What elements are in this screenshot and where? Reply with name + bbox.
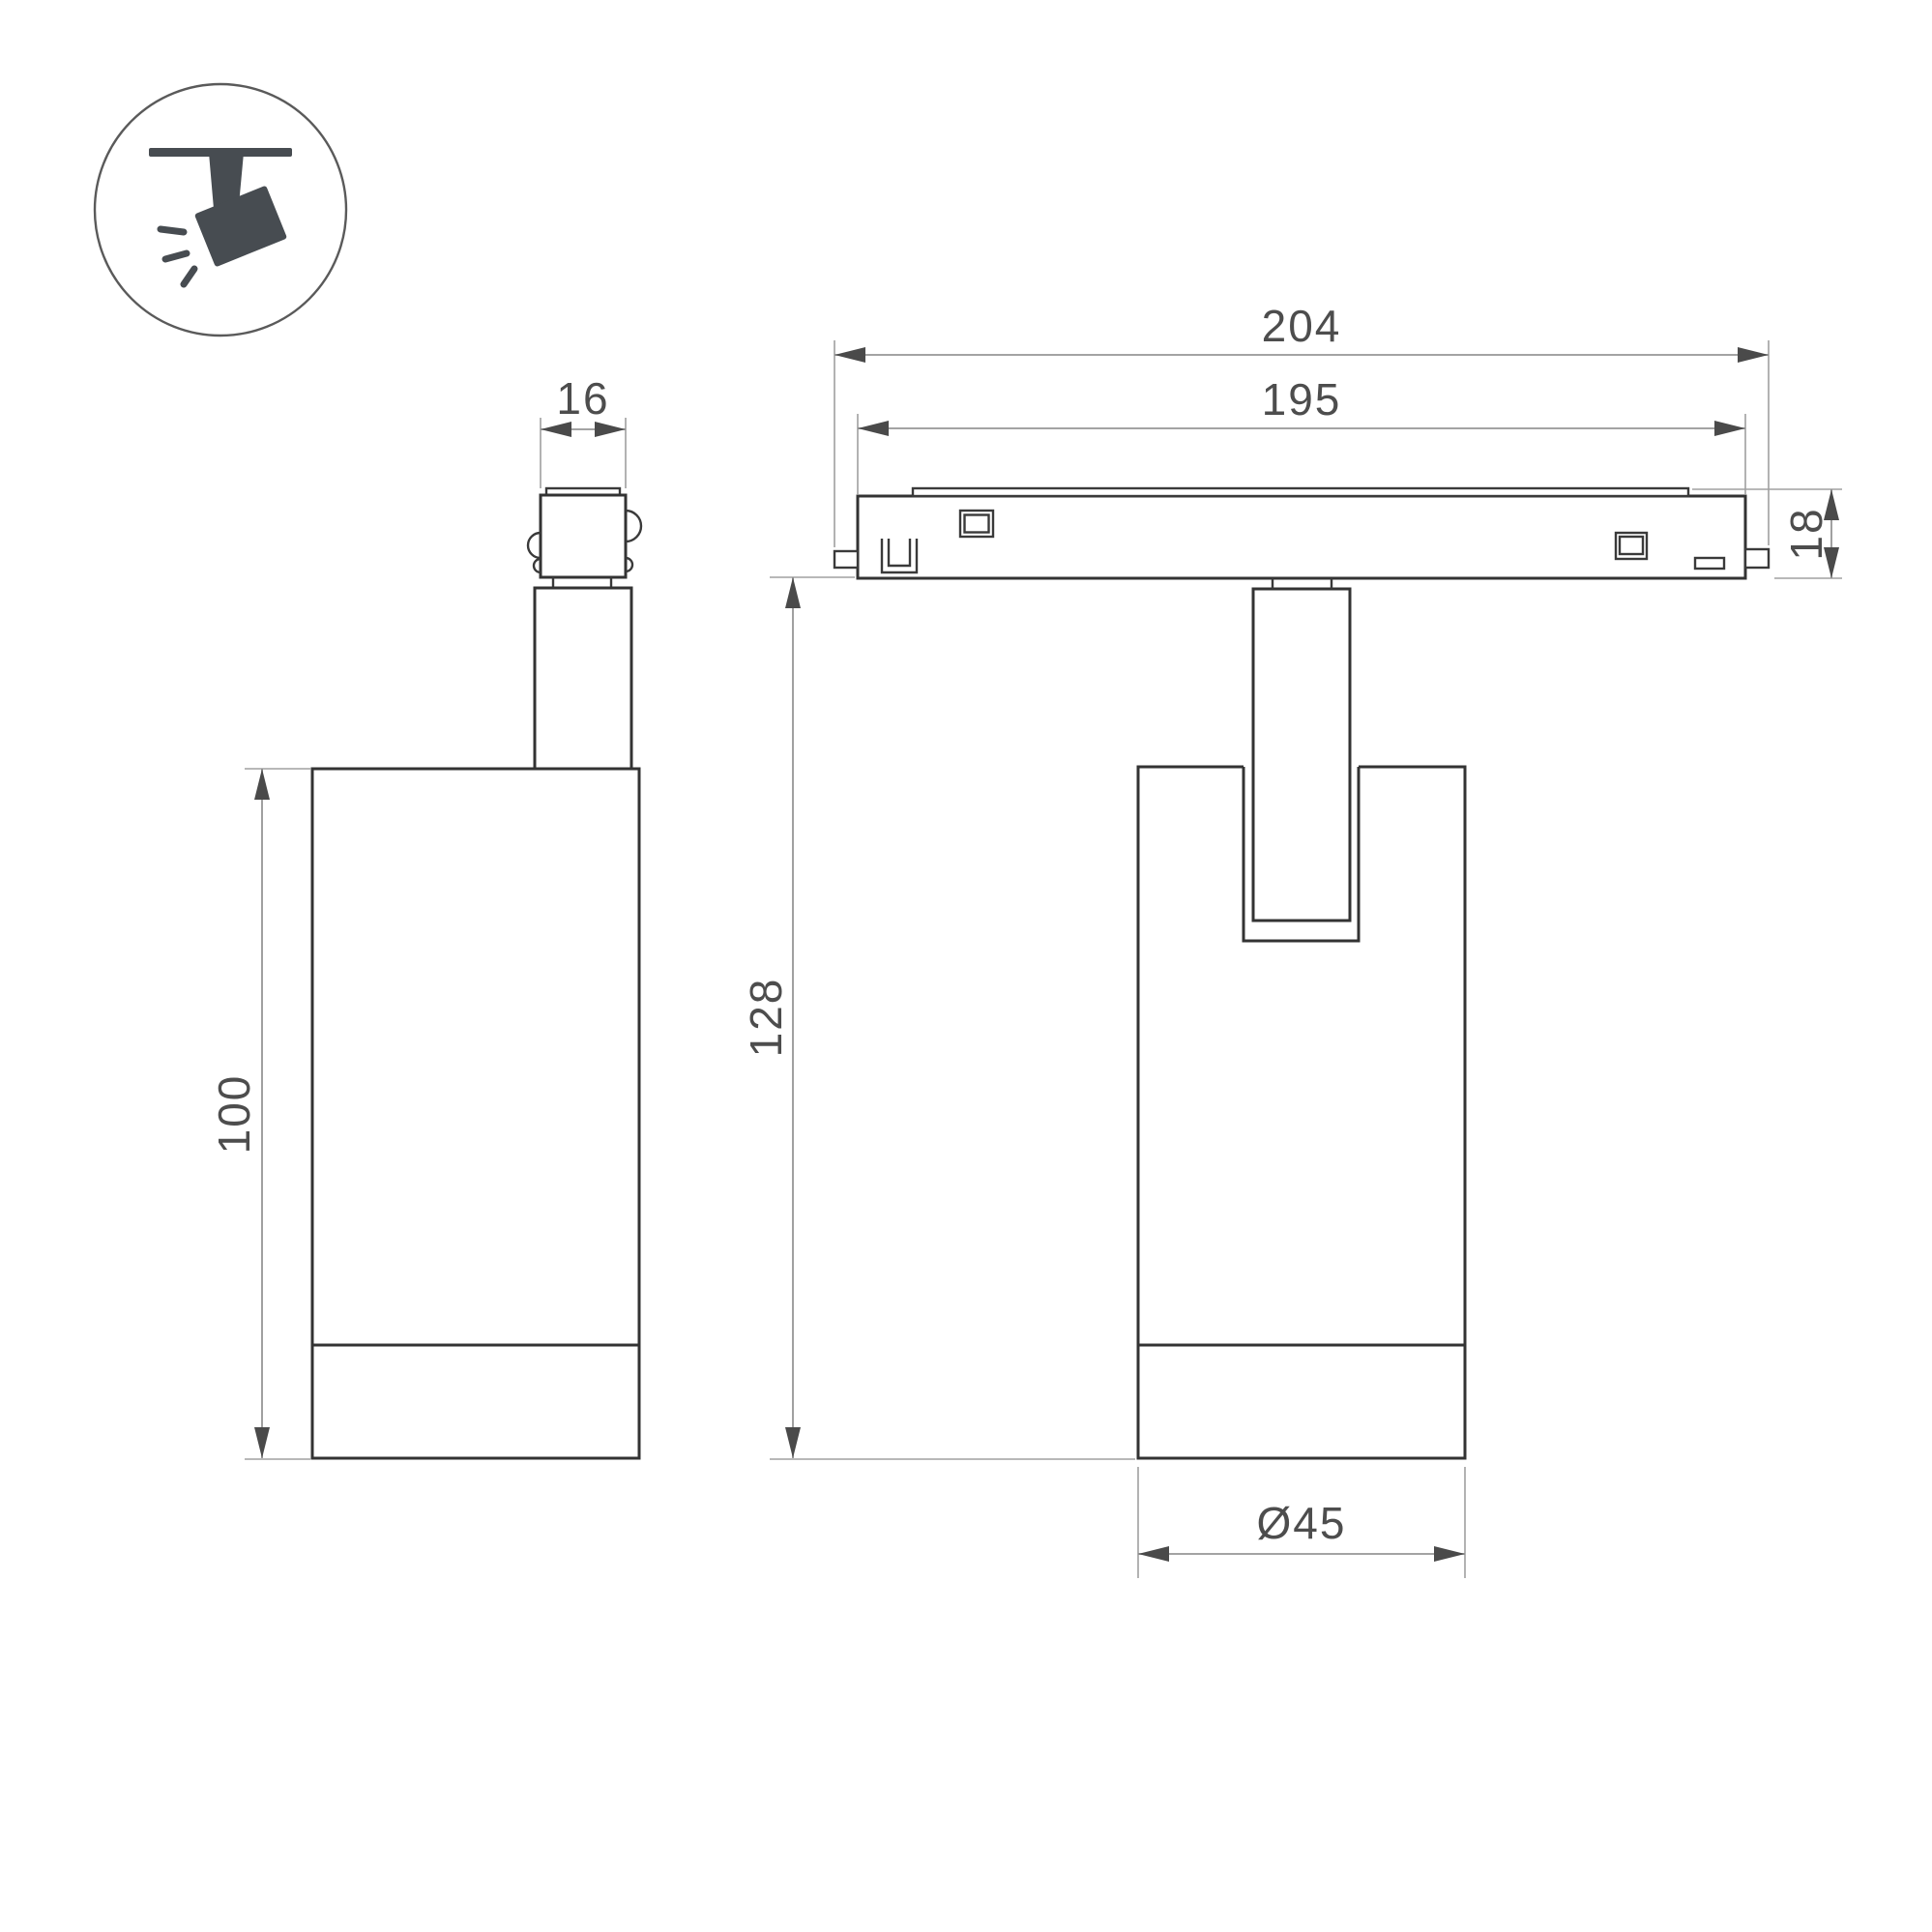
dim-adapter-width: 16 <box>541 373 626 488</box>
track-top-plate <box>913 488 1688 496</box>
dim-body-diameter-label: Ø45 <box>1257 1498 1347 1548</box>
adapter-neck <box>1273 578 1332 589</box>
stem <box>1253 589 1350 921</box>
dim-track-height-label: 18 <box>1781 507 1831 560</box>
track-end-tab <box>1745 549 1769 568</box>
side-view <box>312 488 641 1458</box>
adapter-clip <box>528 533 541 558</box>
arrowhead <box>1738 347 1769 363</box>
arrowhead <box>1714 421 1745 436</box>
track-end-tab <box>834 551 858 568</box>
stem <box>535 588 631 769</box>
dim-overall-height-label: 128 <box>741 978 791 1058</box>
dimension-drawing: 16 100 204 195 <box>0 0 1932 1932</box>
extension-line <box>858 414 1745 494</box>
arrowhead <box>1138 1546 1169 1562</box>
arrowhead <box>834 347 865 363</box>
arrowhead <box>595 422 626 437</box>
track-adapter <box>541 495 626 577</box>
arrowhead <box>785 1427 801 1458</box>
arrowhead <box>785 577 801 608</box>
extension-line <box>770 577 1135 1459</box>
dim-body-height: 100 <box>209 769 310 1459</box>
track-spotlight-icon <box>95 84 346 336</box>
arrowhead <box>541 422 571 437</box>
dim-track-inner: 195 <box>858 374 1745 494</box>
adapter-neck <box>553 577 611 588</box>
adapter-clip <box>626 511 641 542</box>
lamp-body <box>312 769 639 1458</box>
arrowhead <box>1434 1546 1465 1562</box>
dim-track-outer-label: 204 <box>1262 301 1342 351</box>
arrowhead <box>254 1427 270 1458</box>
dim-overall-height: 128 <box>741 577 1135 1459</box>
dim-body-diameter: Ø45 <box>1138 1467 1465 1578</box>
icon-light-ray <box>161 229 184 232</box>
arrowhead <box>858 421 889 436</box>
dim-track-inner-label: 195 <box>1262 374 1342 424</box>
arrowhead <box>254 769 270 800</box>
dim-adapter-width-label: 16 <box>556 373 609 424</box>
dim-body-height-label: 100 <box>209 1074 259 1155</box>
front-view <box>834 488 1769 1458</box>
